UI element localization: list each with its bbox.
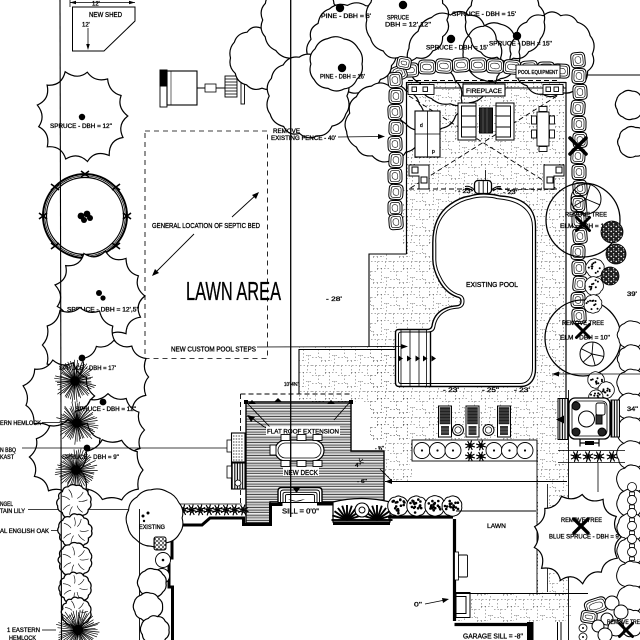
svg-text:EXISTING: EXISTING	[139, 525, 165, 531]
svg-text:SPRUCE - DBH = 12'': SPRUCE - DBH = 12''	[50, 124, 112, 130]
svg-text:NGEL: NGEL	[0, 502, 14, 508]
svg-text:SPRUCE - DBH = 12'': SPRUCE - DBH = 12''	[75, 407, 136, 413]
svg-text:EXISTING POOL: EXISTING POOL	[466, 282, 518, 289]
svg-text:12': 12'	[82, 23, 90, 29]
svg-text:LAWN AREA: LAWN AREA	[186, 276, 281, 306]
svg-text:KAST: KAST	[0, 455, 14, 461]
svg-text:HEMLOCK: HEMLOCK	[9, 636, 36, 640]
svg-text:GENERAL LOCATION OF SEPTIC BED: GENERAL LOCATION OF SEPTIC BED	[152, 223, 260, 230]
svg-text:- 23': - 23'	[514, 388, 530, 394]
svg-text:REMOVE: REMOVE	[273, 129, 300, 135]
svg-text:AL ENGLISH OAK: AL ENGLISH OAK	[0, 529, 49, 535]
svg-text:BLUE SPRUCE - DBH = 9': BLUE SPRUCE - DBH = 9'	[549, 535, 620, 541]
svg-text:SPRUCE - DBH = 15': SPRUCE - DBH = 15'	[452, 12, 516, 18]
svg-text:39': 39'	[627, 292, 637, 298]
svg-text:- ¾'': - ¾''	[375, 446, 384, 452]
svg-text:LAWN: LAWN	[487, 523, 506, 530]
svg-text:NEW DECK: NEW DECK	[284, 470, 318, 477]
svg-text:ERN HEMLOCK: ERN HEMLOCK	[0, 421, 41, 427]
svg-text:0'': 0''	[414, 602, 422, 609]
svg-text:- 23': - 23'	[458, 189, 472, 195]
svg-text:NEW SHED: NEW SHED	[89, 12, 122, 19]
svg-text:REMOVE TREE: REMOVE TREE	[562, 321, 604, 327]
svg-text:SPRUCE - DBH = 9'': SPRUCE - DBH = 9''	[62, 455, 119, 461]
svg-text:10'-4¾'': 10'-4¾''	[284, 382, 299, 388]
svg-text:PINE - DBH = 6': PINE - DBH = 6'	[321, 14, 371, 20]
svg-text:12': 12'	[92, 2, 100, 8]
svg-text:FIREPLACE: FIREPLACE	[466, 88, 503, 95]
svg-text:REMOVE TREE: REMOVE TREE	[561, 518, 602, 524]
svg-text:p: p	[432, 149, 435, 155]
svg-text:GARAGE SILL = -8'': GARAGE SILL = -8''	[463, 634, 523, 640]
svg-text:EXISTING FENCE - 40': EXISTING FENCE - 40'	[271, 136, 336, 142]
svg-text:REMOVE TRE: REMOVE TRE	[607, 620, 640, 626]
svg-text:REMOVE TREE: REMOVE TREE	[565, 213, 607, 219]
svg-text:N BBQ: N BBQ	[0, 448, 16, 454]
svg-text:4'': 4''	[355, 463, 361, 469]
svg-text:- 23': - 23'	[503, 190, 517, 196]
svg-text:SPRUCE - DBH = 15'': SPRUCE - DBH = 15''	[489, 42, 552, 48]
svg-text:34'': 34''	[627, 407, 638, 413]
svg-text:NEW CUSTOM POOL STEPS: NEW CUSTOM POOL STEPS	[171, 347, 256, 354]
svg-text:POOL EQUIPMENT: POOL EQUIPMENT	[518, 70, 559, 76]
svg-text:ELM - DBH = 10'': ELM - DBH = 10''	[560, 336, 610, 342]
svg-text:d: d	[420, 123, 423, 129]
svg-text:- 23': - 23'	[443, 388, 459, 394]
svg-text:1 EASTERN: 1 EASTERN	[7, 628, 40, 634]
svg-text:PINE - DBH = 16': PINE - DBH = 16'	[320, 75, 365, 81]
svg-text:SPRUCE: SPRUCE	[387, 16, 409, 22]
svg-text:SPRUCE - DBH = 17': SPRUCE - DBH = 17'	[59, 366, 116, 372]
svg-text:DBH = 12',12'': DBH = 12',12''	[385, 23, 431, 29]
svg-text:TAIN LILY: TAIN LILY	[0, 509, 25, 515]
svg-text:- 6'': - 6''	[357, 479, 367, 485]
svg-text:- 28': - 28'	[326, 296, 342, 303]
svg-text:- 25'': - 25''	[482, 388, 499, 394]
svg-text:SPRUCE - DBH = 15': SPRUCE - DBH = 15'	[426, 46, 488, 52]
svg-text:SILL = 0'0'': SILL = 0'0''	[282, 509, 319, 516]
